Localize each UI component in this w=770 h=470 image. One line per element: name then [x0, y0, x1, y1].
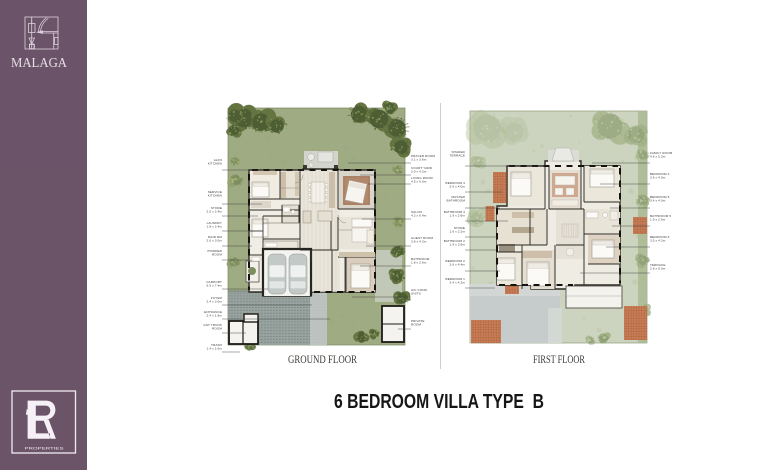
svg-text:GUEST ROOM3.8 x 4.2m: GUEST ROOM3.8 x 4.2m	[411, 236, 433, 243]
svg-text:PRIVATEROOM: PRIVATEROOM	[411, 319, 424, 326]
svg-text:STORE2.0 x 2.4m: STORE2.0 x 2.4m	[207, 206, 223, 213]
svg-text:BATHROOM 41.9 x 2.6m: BATHROOM 41.9 x 2.6m	[444, 210, 466, 217]
svg-text:A/C COND.UNITS: A/C COND.UNITS	[411, 288, 428, 295]
svg-text:TRASH1.4 x 1.6m: TRASH1.4 x 1.6m	[207, 343, 223, 350]
svg-text:COURT YARD3.0 x 4.2m: COURT YARD3.0 x 4.2m	[411, 166, 433, 173]
svg-text:FIRST FLOOR: FIRST FLOOR	[533, 354, 585, 366]
svg-text:SALON4.2 x 6.4m: SALON4.2 x 6.4m	[411, 210, 427, 217]
svg-text:BEDROOM 23.6 x 4.4m: BEDROOM 23.6 x 4.4m	[446, 259, 466, 266]
svg-text:ALFNKITCHEN: ALFNKITCHEN	[208, 158, 222, 165]
svg-text:LAUNDRY1.8 x 2.4m: LAUNDRY1.8 x 2.4m	[207, 221, 223, 228]
svg-text:MASTERBATHROOM: MASTERBATHROOM	[447, 195, 466, 202]
svg-text:FOYER2.4 x 3.0m: FOYER2.4 x 3.0m	[207, 296, 223, 303]
svg-text:SHADEDTERRACE: SHADEDTERRACE	[450, 150, 466, 157]
svg-text:6 BEDROOM VILLA TYPE B: 6 BEDROOM VILLA TYPE B	[334, 390, 544, 413]
svg-text:PROPERTIES: PROPERTIES	[25, 446, 65, 450]
svg-text:SERVICEKITCHEN: SERVICEKITCHEN	[208, 190, 222, 197]
svg-text:PRAYER ROOM3.1 x 3.6m: PRAYER ROOM3.1 x 3.6m	[411, 154, 435, 161]
svg-text:CARPORT5.5 x 7.4m: CARPORT5.5 x 7.4m	[206, 280, 222, 287]
svg-text:BEDROOM 53.4 x 4.0m: BEDROOM 53.4 x 4.0m	[650, 195, 670, 202]
svg-text:MALAGA: MALAGA	[11, 55, 67, 70]
svg-text:BEDROOM 33.6 x 4.0m: BEDROOM 33.6 x 4.0m	[650, 172, 670, 179]
svg-text:STORE1.6 x 2.2m: STORE1.6 x 2.2m	[450, 226, 466, 233]
svg-text:BATHROOM 51.9 x 2.6m: BATHROOM 51.9 x 2.6m	[650, 214, 671, 221]
svg-text:TERRACE2.8 x 8.0m: TERRACE2.8 x 8.0m	[650, 263, 666, 270]
svg-text:GST TRUNKROOM: GST TRUNKROOM	[203, 323, 222, 330]
svg-text:GROUND FLOOR: GROUND FLOOR	[288, 354, 357, 366]
svg-text:MAID RM2.6 x 3.0m: MAID RM2.6 x 3.0m	[207, 235, 223, 242]
svg-text:POWDERROOM: POWDERROOM	[207, 249, 222, 256]
svg-text:ENTRANCE2.4 x 1.9m: ENTRANCE2.4 x 1.9m	[204, 310, 222, 317]
svg-text:LIVING ROOM4.5 x 6.0m: LIVING ROOM4.5 x 6.0m	[411, 176, 433, 183]
svg-text:BEDROOM 13.4 x 4.2m: BEDROOM 13.4 x 4.2m	[446, 277, 466, 284]
svg-text:BEDROOM 43.6 x 4.0m: BEDROOM 43.6 x 4.0m	[446, 181, 466, 188]
svg-text:FAMILY ROOM4.6 x 5.2m: FAMILY ROOM4.6 x 5.2m	[650, 151, 673, 158]
svg-text:BATHROOM 21.9 x 2.6m: BATHROOM 21.9 x 2.6m	[444, 239, 466, 246]
svg-text:BEDROOM 63.5 x 4.2m: BEDROOM 63.5 x 4.2m	[650, 235, 670, 242]
svg-text:BATHROOM1.8 x 2.6m: BATHROOM1.8 x 2.6m	[411, 257, 430, 264]
